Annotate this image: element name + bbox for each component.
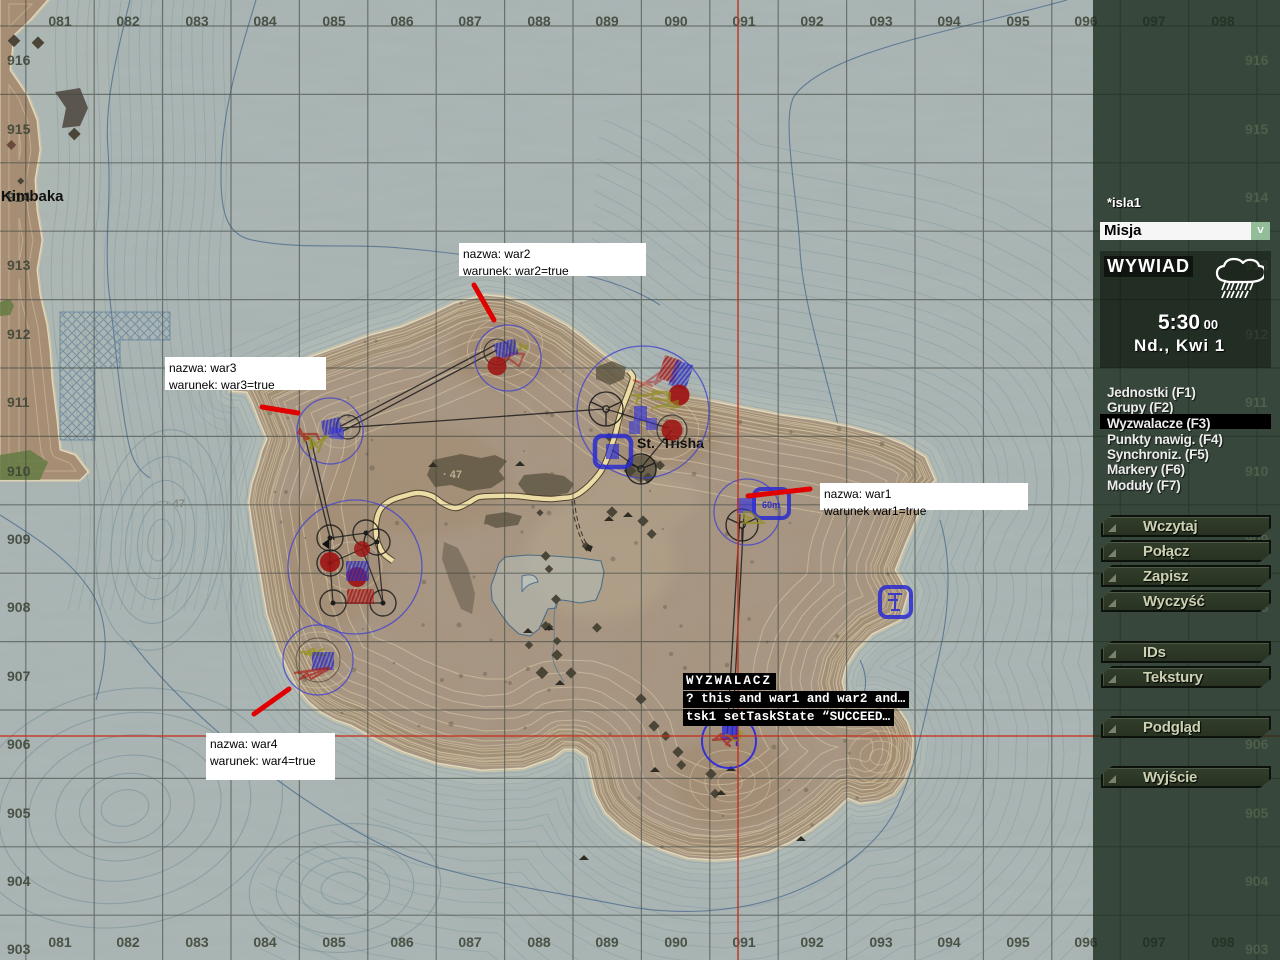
svg-text:093: 093 [869, 934, 893, 950]
svg-text:089: 089 [595, 934, 619, 950]
svg-text:088: 088 [527, 934, 551, 950]
svg-text:· 47: · 47 [166, 498, 185, 510]
svg-text:905: 905 [7, 805, 31, 821]
svg-text:091: 091 [732, 934, 756, 950]
svg-text:083: 083 [185, 934, 209, 950]
svg-text:082: 082 [116, 13, 140, 29]
svg-text:907: 907 [7, 668, 31, 684]
svg-text:082: 082 [116, 934, 140, 950]
svg-text:081: 081 [48, 13, 72, 29]
svg-text:911: 911 [7, 394, 30, 410]
svg-text:916: 916 [7, 52, 31, 68]
svg-text:087: 087 [458, 13, 482, 29]
svg-text:094: 094 [937, 934, 961, 950]
svg-text:085: 085 [322, 13, 346, 29]
svg-text:60m: 60m [762, 500, 780, 510]
svg-text:092: 092 [800, 934, 824, 950]
svg-text:095: 095 [1006, 934, 1030, 950]
svg-text:Kimbaka: Kimbaka [1, 188, 64, 205]
svg-text:095: 095 [1006, 13, 1030, 29]
svg-text:· 47: · 47 [443, 469, 462, 481]
svg-text:909: 909 [7, 531, 31, 547]
svg-text:912: 912 [7, 326, 31, 342]
svg-text:915: 915 [7, 121, 31, 137]
svg-text:081: 081 [48, 934, 72, 950]
svg-text:086: 086 [390, 13, 414, 29]
svg-text:091: 091 [732, 13, 756, 29]
svg-text:084: 084 [253, 13, 277, 29]
svg-text:092: 092 [800, 13, 824, 29]
svg-text:085: 085 [322, 934, 346, 950]
svg-text:904: 904 [7, 873, 31, 889]
svg-text:910: 910 [7, 463, 31, 479]
svg-text:090: 090 [664, 934, 688, 950]
svg-text:906: 906 [7, 736, 31, 752]
svg-text:083: 083 [185, 13, 209, 29]
svg-text:908: 908 [7, 599, 31, 615]
svg-text:090: 090 [664, 13, 688, 29]
svg-text:913: 913 [7, 257, 31, 273]
svg-text:903: 903 [7, 941, 31, 957]
svg-text:084: 084 [253, 934, 277, 950]
svg-text:089: 089 [595, 13, 619, 29]
svg-text:088: 088 [527, 13, 551, 29]
svg-text:086: 086 [390, 934, 414, 950]
svg-text:094: 094 [937, 13, 961, 29]
svg-text:087: 087 [458, 934, 482, 950]
svg-text:093: 093 [869, 13, 893, 29]
